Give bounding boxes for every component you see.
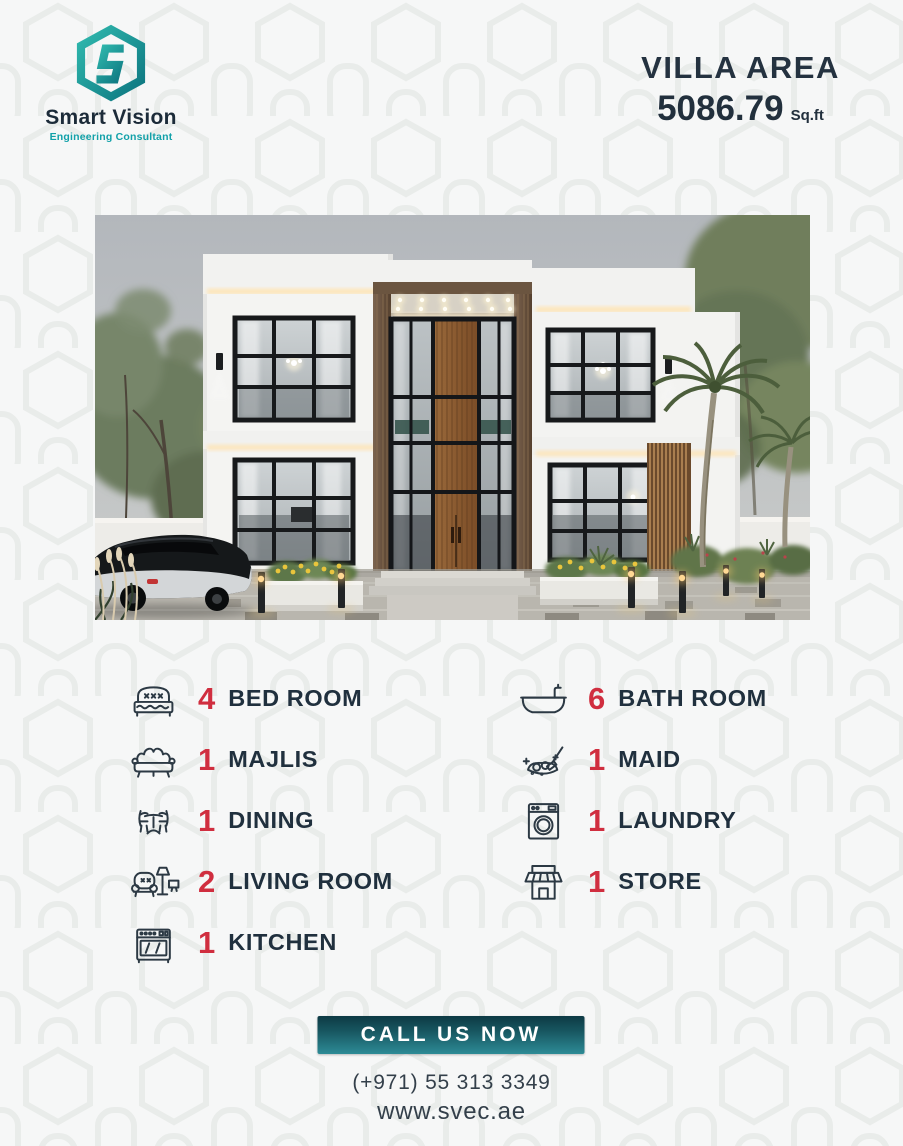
dining-table-icon: [126, 793, 181, 848]
phone-number: (+971) 55 313 3349: [0, 1071, 903, 1095]
feature-label: MAID: [618, 746, 680, 773]
feature-count: 6: [588, 681, 605, 717]
feature-label: DINING: [228, 807, 314, 834]
living-room-icon: [126, 854, 181, 909]
villa-area-unit: Sq.ft: [791, 107, 824, 124]
brand-logo-block: Smart Vision Engineering Consultant: [36, 24, 186, 143]
feature-label: LAUNDRY: [618, 807, 736, 834]
bathtub-icon: [516, 671, 571, 726]
villa-area-block: VILLA AREA 5086.79 Sq.ft: [598, 50, 883, 129]
maid-cleaning-icon: [516, 732, 571, 787]
feature-majlis: 1 MAJLIS: [126, 729, 393, 790]
feature-count: 1: [588, 803, 605, 839]
feature-label: MAJLIS: [228, 746, 318, 773]
flyer-canvas: Smart Vision Engineering Consultant VILL…: [0, 0, 903, 1146]
kitchen-stove-icon: [126, 915, 181, 970]
storefront-icon: [516, 854, 571, 909]
feature-bath-room: 6 BATH ROOM: [516, 668, 767, 729]
brand-tagline: Engineering Consultant: [50, 131, 173, 143]
feature-count: 2: [198, 864, 215, 900]
feature-maid: 1 MAID: [516, 729, 767, 790]
feature-living-room: 2 LIVING ROOM: [126, 851, 393, 912]
feature-label: STORE: [618, 868, 702, 895]
feature-count: 1: [588, 742, 605, 778]
feature-count: 1: [198, 742, 215, 778]
feature-label: KITCHEN: [228, 929, 337, 956]
website-link[interactable]: www.svec.ae: [0, 1098, 903, 1126]
feature-label: BATH ROOM: [618, 685, 767, 712]
feature-count: 1: [198, 925, 215, 961]
feature-store: 1 STORE: [516, 851, 767, 912]
villa-area-value: 5086.79: [657, 89, 784, 129]
majlis-sofa-icon: [126, 732, 181, 787]
feature-count: 1: [198, 803, 215, 839]
washing-machine-icon: [516, 793, 571, 848]
feature-count: 4: [198, 681, 215, 717]
smart-vision-logo-icon: [63, 24, 159, 104]
call-us-now-button[interactable]: CALL US NOW: [318, 1016, 585, 1054]
bed-icon: [126, 671, 181, 726]
features-right-column: 6 BATH ROOM 1 MAID: [516, 668, 767, 912]
feature-kitchen: 1 KITCHEN: [126, 912, 393, 973]
feature-laundry: 1 LAUNDRY: [516, 790, 767, 851]
feature-label: BED ROOM: [228, 685, 362, 712]
feature-bed-room: 4 BED ROOM: [126, 668, 393, 729]
villa-area-title: VILLA AREA: [598, 50, 883, 86]
feature-count: 1: [588, 864, 605, 900]
features-left-column: 4 BED ROOM 1 MAJLIS: [126, 668, 393, 973]
brand-name: Smart Vision: [45, 106, 177, 130]
feature-label: LIVING ROOM: [228, 868, 393, 895]
feature-dining: 1 DINING: [126, 790, 393, 851]
villa-render-image: [95, 215, 810, 620]
